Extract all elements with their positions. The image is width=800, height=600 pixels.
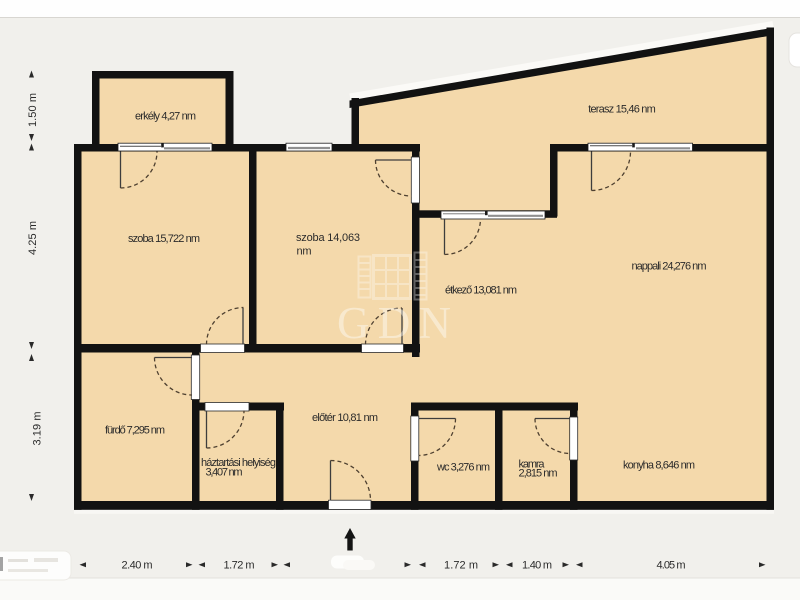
svg-text:4.25 m: 4.25 m: [27, 221, 39, 255]
svg-text:1.40 m: 1.40 m: [522, 560, 552, 572]
svg-text:3,407 nm: 3,407 nm: [206, 467, 243, 479]
svg-text:4.05 m: 4.05 m: [657, 560, 686, 572]
svg-text:szoba 14,063: szoba 14,063: [296, 232, 360, 244]
svg-text:nappali 24,276 nm: nappali 24,276 nm: [632, 261, 707, 273]
svg-text:étkező 13,081 nm: étkező 13,081 nm: [445, 285, 517, 297]
svg-text:1.72 m: 1.72 m: [224, 560, 255, 572]
svg-text:előtér 10,81 nm: előtér 10,81 nm: [312, 412, 378, 424]
svg-text:3.19 m: 3.19 m: [32, 412, 44, 446]
svg-text:terasz 15,46 nm: terasz 15,46 nm: [588, 104, 656, 116]
svg-text:fürdő 7,295 nm: fürdő 7,295 nm: [105, 425, 165, 437]
svg-text:1.72 m: 1.72 m: [444, 560, 478, 572]
svg-text:nm: nm: [297, 246, 312, 258]
svg-text:wc 3,276 nm: wc 3,276 nm: [436, 462, 490, 474]
svg-text:szoba 15,722 nm: szoba 15,722 nm: [128, 233, 200, 245]
svg-text:2,815 nm: 2,815 nm: [519, 468, 558, 480]
svg-text:GDN: GDN: [337, 298, 465, 348]
svg-text:2.40 m: 2.40 m: [122, 560, 153, 572]
svg-text:konyha 8,646 nm: konyha 8,646 nm: [623, 460, 695, 472]
svg-text:1.50 m: 1.50 m: [27, 93, 39, 127]
svg-text:erkély 4,27 nm: erkély 4,27 nm: [135, 111, 196, 123]
